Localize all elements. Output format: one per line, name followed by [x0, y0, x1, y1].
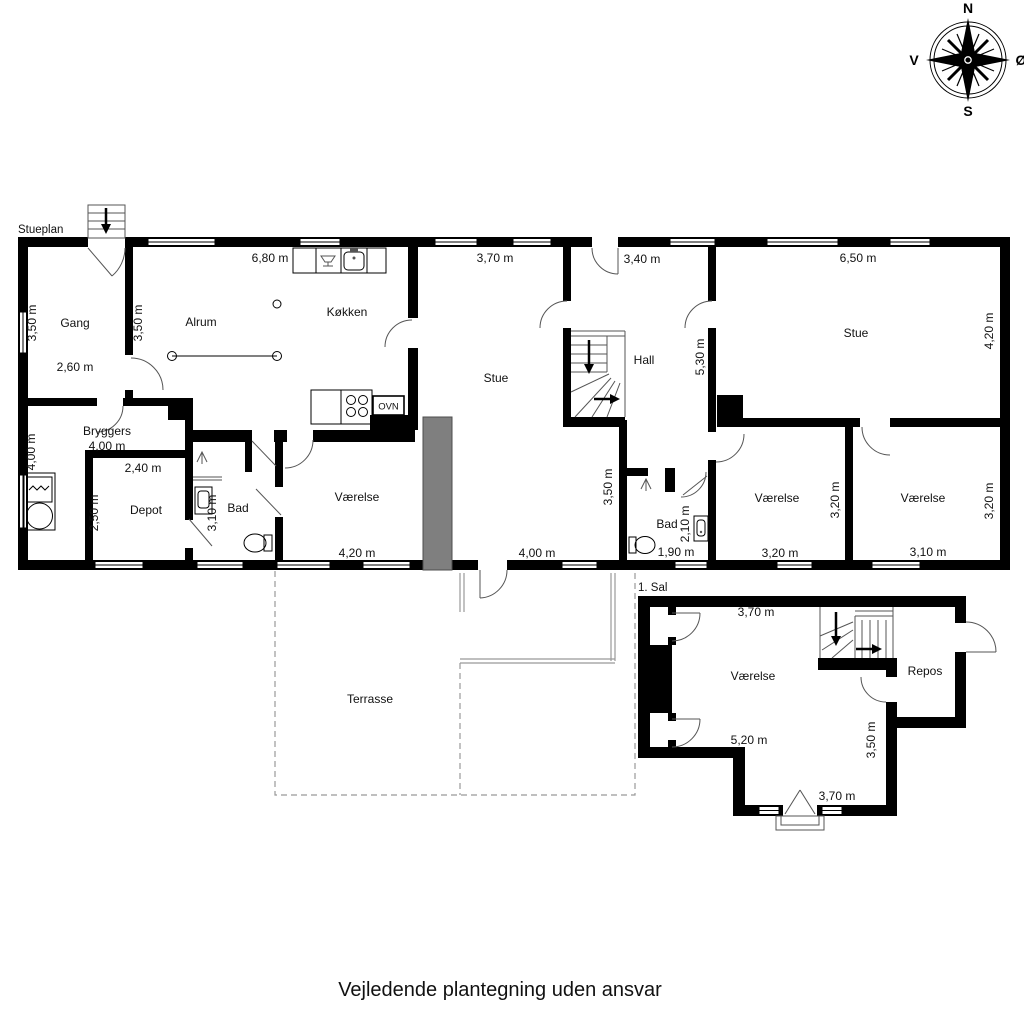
- room-label-terrasse: Terrasse: [347, 692, 393, 706]
- dim-ff-vaerelse-width: 5,20 m: [731, 733, 768, 747]
- kitchen-counter-icon: [293, 248, 386, 273]
- room-label-vaerelse-right: Værelse: [901, 491, 946, 505]
- toilet-icon: [244, 534, 272, 552]
- dim-bad-mid-height: 2,10 m: [678, 506, 692, 543]
- dim-hall-height: 5,30 m: [693, 339, 707, 376]
- compass-east-label: Ø: [1016, 52, 1024, 68]
- dim-depot-height: 2,50 m: [87, 495, 101, 532]
- dim-depot-width: 2,40 m: [125, 461, 162, 475]
- entrance-steps-icon: [88, 205, 125, 238]
- room-label-kokken: Køkken: [327, 305, 368, 319]
- room-label-stue-mid: Stue: [484, 371, 509, 385]
- room-label-bad-mid: Bad: [656, 517, 677, 531]
- room-label-repos: Repos: [908, 664, 943, 678]
- cooktop-icon: [321, 256, 335, 266]
- dim-bryggers-width: 4,00 m: [89, 439, 126, 453]
- alrum-fixtures: [168, 300, 282, 361]
- dim-vaerelse-right-width: 3,10 m: [910, 545, 947, 559]
- dim-bad-mid-width: 1,90 m: [658, 545, 695, 559]
- hook-icon: [641, 479, 651, 491]
- terrasse-outline: [275, 571, 635, 795]
- dim-ff-vaerelse-height: 3,50 m: [864, 722, 878, 759]
- room-label-gang: Gang: [60, 316, 89, 330]
- room-label-depot: Depot: [130, 503, 163, 517]
- toilet-icon: [629, 537, 655, 554]
- dim-vaerelse-mid-height: 3,20 m: [828, 482, 842, 519]
- hall-staircase-icon: [571, 331, 625, 417]
- dim-stue-right-top: 6,50 m: [840, 251, 877, 265]
- first-floor-walls: [638, 596, 966, 816]
- room-label-alrum: Alrum: [185, 315, 216, 329]
- washing-machine-icon: [24, 473, 55, 530]
- room-label-hall: Hall: [634, 353, 655, 367]
- dim-stue-right-height: 4,20 m: [982, 313, 996, 350]
- dim-stue-mid-top: 3,70 m: [477, 251, 514, 265]
- chimney: [423, 417, 452, 570]
- compass-north-label: N: [963, 0, 973, 16]
- compass-rose-icon: N S V Ø: [909, 0, 1024, 119]
- dim-vaerelse-left-width: 4,20 m: [339, 546, 376, 560]
- dim-ff-vaerelse-bottom: 3,70 m: [819, 789, 856, 803]
- ground-floor-walls: [18, 237, 1010, 570]
- dim-vaerelse-mid-width: 3,20 m: [762, 546, 799, 560]
- dim-ff-vaerelse-top: 3,70 m: [738, 605, 775, 619]
- dim-alrum-top-width: 6,80 m: [252, 251, 289, 265]
- dim-vaerelse-right-height: 3,20 m: [982, 483, 996, 520]
- dim-bad-mid-wall: 3,50 m: [601, 469, 615, 506]
- room-label-vaerelse-mid: Værelse: [755, 491, 800, 505]
- ground-floor-title: Stueplan: [18, 224, 63, 236]
- room-label-vaerelse-left: Værelse: [335, 490, 380, 504]
- dim-hall-top: 3,40 m: [624, 252, 661, 266]
- sink-icon: [344, 248, 364, 270]
- dim-stue-mid-bottom: 4,00 m: [519, 546, 556, 560]
- room-label-bryggers: Bryggers: [83, 424, 131, 438]
- stove-icon: [311, 390, 372, 424]
- first-floor-staircase-icon: [820, 607, 893, 658]
- room-label-ff-vaerelse: Værelse: [731, 669, 776, 683]
- floor-plan: N S V Ø: [0, 0, 1024, 1024]
- dim-alrum-height: 3,50 m: [131, 305, 145, 342]
- disclaimer-caption: Vejledende plantegning uden ansvar: [338, 979, 662, 1001]
- compass-south-label: S: [963, 103, 972, 119]
- hook-icon: [197, 452, 207, 464]
- oven-box: OVN: [373, 396, 404, 415]
- room-label-bad-left: Bad: [227, 501, 248, 515]
- dim-bryggers-height: 4,00 m: [24, 434, 38, 471]
- sink-icon: [694, 516, 708, 541]
- compass-west-label: V: [909, 52, 919, 68]
- dim-gang-width: 2,60 m: [57, 360, 94, 374]
- dim-gang-height: 3,50 m: [25, 305, 39, 342]
- oven-label: OVN: [378, 402, 399, 413]
- dim-bad-left-height: 3,10 m: [205, 495, 219, 532]
- room-label-stue-right: Stue: [844, 326, 869, 340]
- first-floor-title: 1. Sal: [638, 582, 667, 594]
